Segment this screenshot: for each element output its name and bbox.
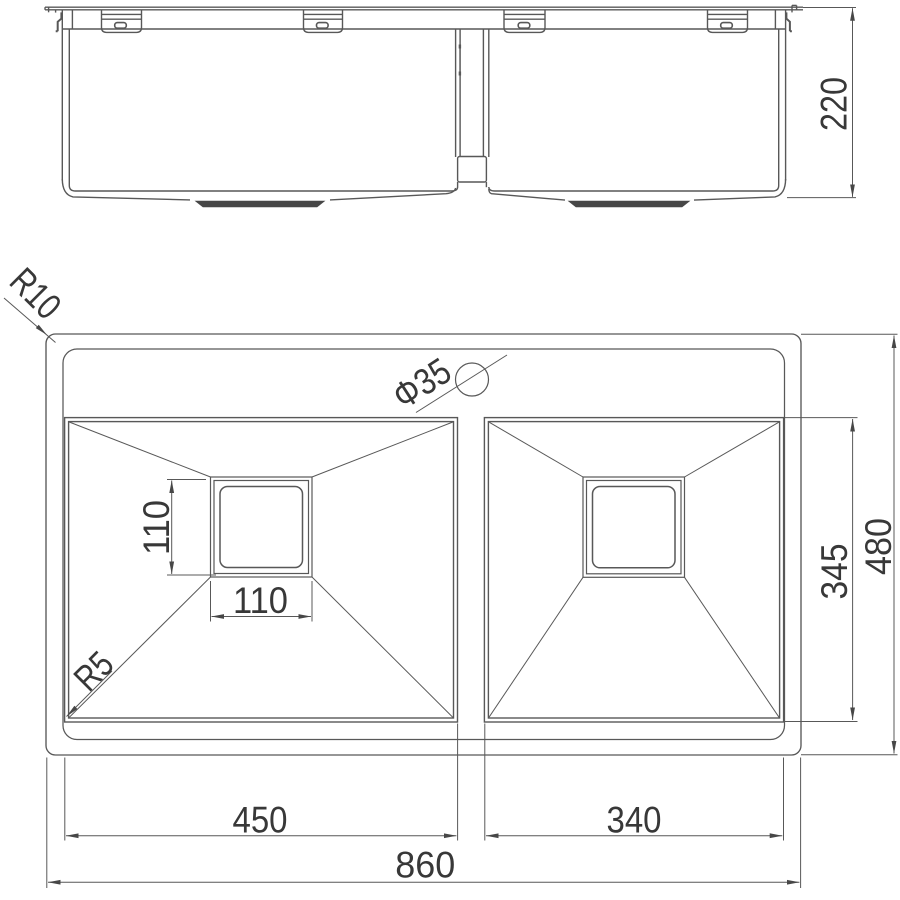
svg-text:R10: R10 bbox=[2, 260, 69, 327]
svg-text:Φ35: Φ35 bbox=[386, 350, 459, 417]
svg-text:860: 860 bbox=[395, 845, 455, 886]
svg-text:450: 450 bbox=[233, 800, 288, 841]
svg-text:110: 110 bbox=[233, 580, 288, 621]
svg-text:340: 340 bbox=[607, 800, 662, 841]
svg-text:480: 480 bbox=[858, 518, 899, 575]
svg-text:110: 110 bbox=[136, 500, 177, 555]
svg-text:220: 220 bbox=[814, 77, 855, 131]
svg-text:R5: R5 bbox=[66, 643, 122, 699]
svg-text:345: 345 bbox=[814, 544, 855, 600]
